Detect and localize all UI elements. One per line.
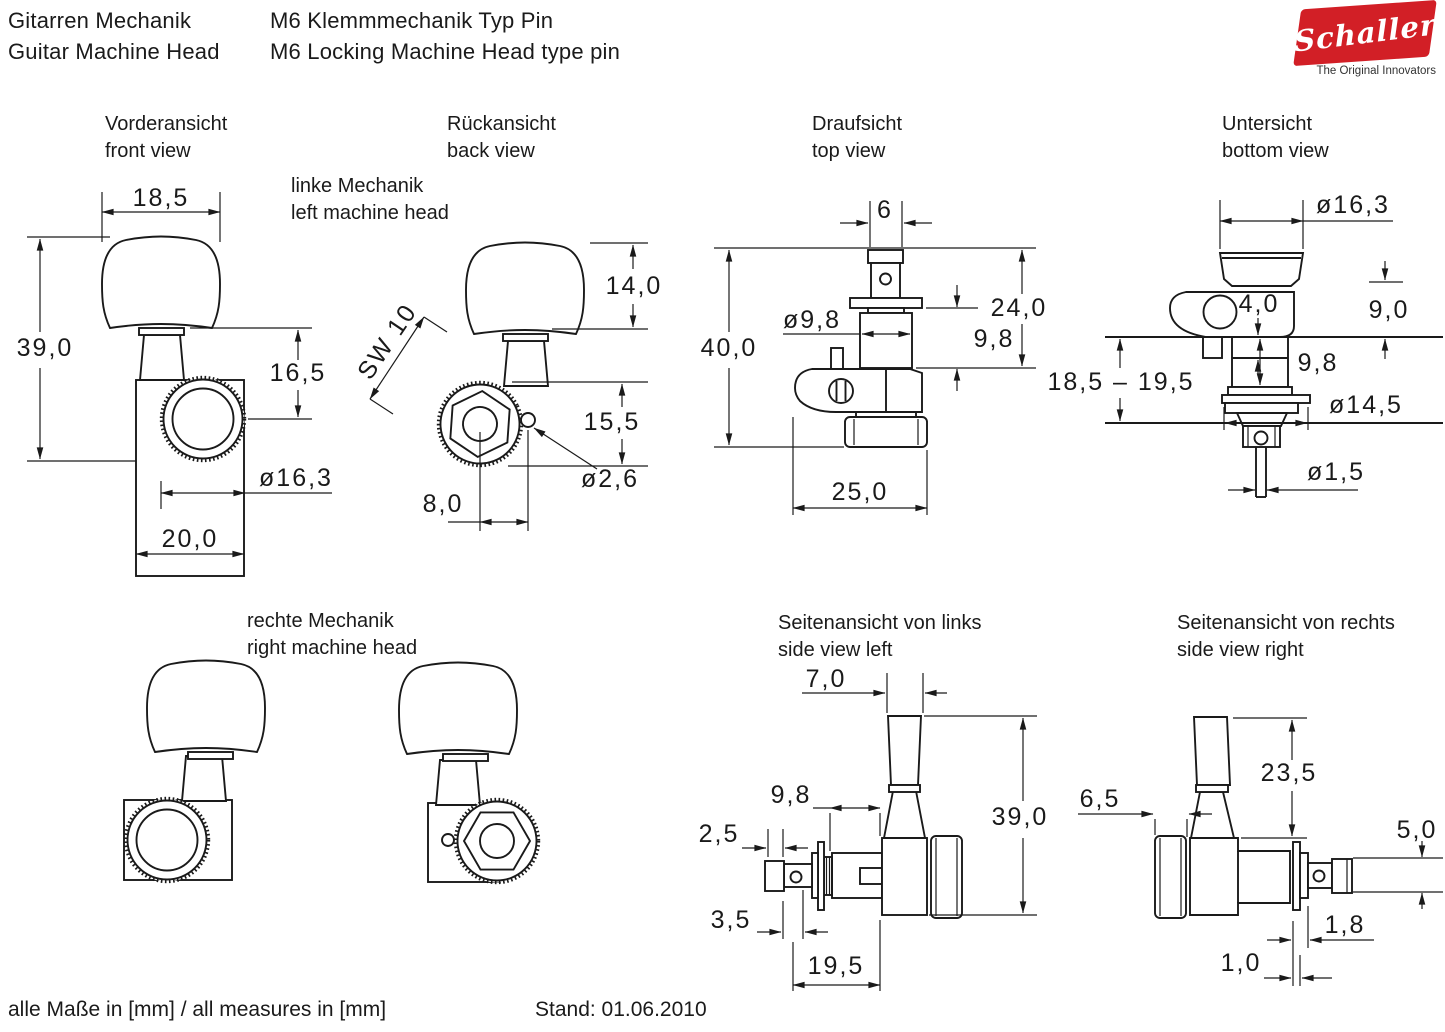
dim-top-post-width: 6 [877, 196, 893, 224]
dim-bottom-flange-dia: ø14,5 [1329, 391, 1403, 419]
dim-sideright-plate-washer: 1,8 [1325, 911, 1366, 939]
dim-back-knob-height: 15,5 [584, 408, 641, 436]
dim-bottom-plate-step: 4,0 [1239, 290, 1280, 318]
dim-back-pin-offset: 8,0 [423, 490, 464, 518]
bottom-view-drawing: ø16,3 4,0 9,0 9,8 ø14,5 ø1,5 18,5 – 19,5 [1047, 191, 1443, 497]
dim-front-button-width: 18,5 [133, 184, 190, 212]
dim-front-post-offset: 16,5 [270, 359, 327, 387]
dim-bottom-pin-dia: ø1,5 [1307, 458, 1365, 486]
side-view-left-drawing: 7,0 9,8 2,5 3,5 19,5 39,0 [699, 665, 1049, 991]
dim-sideleft-hole-offset: 3,5 [711, 906, 752, 934]
top-view-drawing: 6 40,0 24,0 9,8 ø9,8 25,0 [701, 196, 1048, 515]
dim-sideleft-button-depth: 7,0 [806, 665, 847, 693]
dim-back-button-height: 14,0 [606, 272, 663, 300]
dim-sideleft-bushing-length: 9,8 [771, 781, 812, 809]
dim-front-total-height: 39,0 [17, 334, 74, 362]
dim-top-upper-depth: 24,0 [991, 294, 1048, 322]
dim-bottom-bushing-length: 9,8 [1298, 349, 1339, 377]
dim-sideright-tip-dia: 5,0 [1397, 816, 1438, 844]
dim-top-housing-depth: 25,0 [832, 478, 889, 506]
right-machine-head-drawings [124, 661, 539, 883]
dim-top-bushing-dia: ø9,8 [783, 306, 841, 334]
dim-sideleft-post-length: 19,5 [808, 952, 865, 980]
dim-top-bushing-length: 9,8 [974, 325, 1015, 353]
dim-sideright-washer: 1,0 [1221, 949, 1262, 977]
dim-back-pin-hole-dia: ø2,6 [581, 465, 639, 493]
dim-headstock-thickness-range: 18,5 – 19,5 [1047, 368, 1194, 396]
dim-sideleft-total-height: 39,0 [992, 803, 1049, 831]
back-view-drawing: SW 10 14,0 15,5 ø2,6 8,0 [352, 243, 662, 532]
dim-top-total-depth: 40,0 [701, 334, 758, 362]
dim-bottom-button-clearance: 9,0 [1369, 296, 1410, 324]
dim-bottom-button-dia: ø16,3 [1316, 191, 1390, 219]
side-view-right-drawing: 6,5 23,5 5,0 1,8 1,0 [1078, 717, 1443, 986]
dim-sideright-knob-depth: 6,5 [1080, 785, 1121, 813]
front-view-drawing: 18,5 39,0 16,5 ø16,3 20,0 [17, 184, 333, 576]
dim-sideleft-tip-length: 2,5 [699, 820, 740, 848]
technical-drawing-canvas: 18,5 39,0 16,5 ø16,3 20,0 [0, 0, 1445, 1032]
drawing-sheet: Gitarren Mechanik Guitar Machine Head M6… [0, 0, 1445, 1032]
dim-front-knob-dia: ø16,3 [259, 464, 333, 492]
dim-front-housing-width: 20,0 [162, 525, 219, 553]
dim-sideright-upper-height: 23,5 [1261, 759, 1318, 787]
